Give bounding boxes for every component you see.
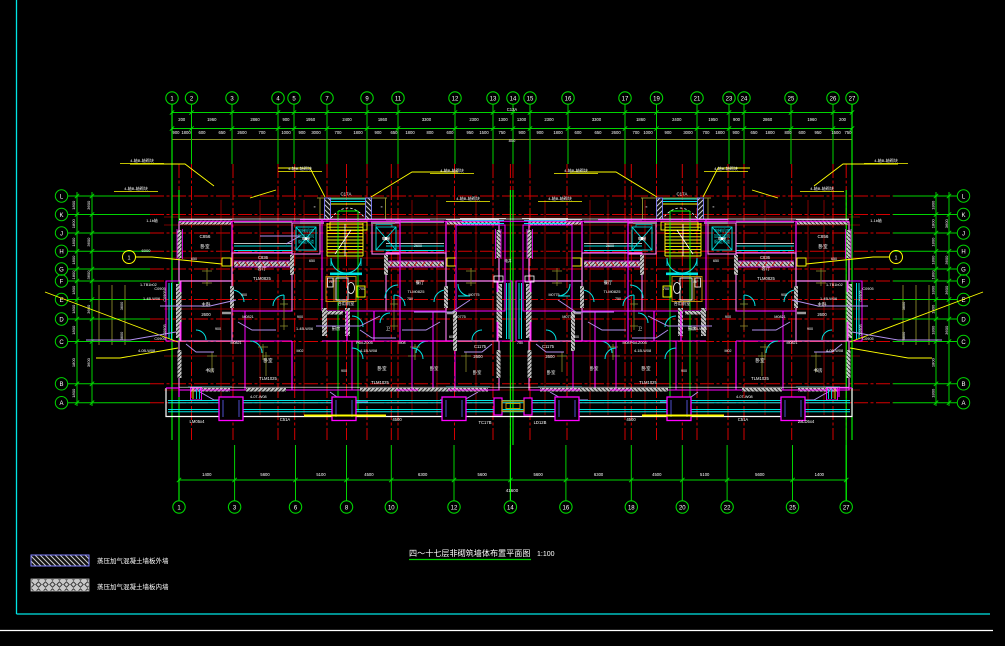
svg-text:K: K <box>59 213 63 219</box>
svg-text:1950: 1950 <box>306 117 316 122</box>
svg-text:4-轴B-轴砌块: 4-轴B-轴砌块 <box>130 157 154 163</box>
svg-text:1-4B-W06: 1-4B-W06 <box>296 327 313 331</box>
svg-text:1800: 1800 <box>71 285 76 295</box>
svg-text:K: K <box>961 213 965 219</box>
svg-text:700: 700 <box>359 287 365 291</box>
svg-text:四～十七层非砌筑墙体布置平面图: 四～十七层非砌筑墙体布置平面图 <box>409 548 530 558</box>
svg-text:1800: 1800 <box>71 200 76 210</box>
svg-text:LD12B: LD12B <box>534 420 547 425</box>
svg-text:G: G <box>961 267 966 273</box>
svg-text:1800: 1800 <box>931 325 936 335</box>
svg-text:1860: 1860 <box>636 117 646 122</box>
svg-text:C0905: C0905 <box>862 337 873 341</box>
svg-text:950: 950 <box>467 130 475 135</box>
svg-text:3600: 3600 <box>944 219 949 229</box>
svg-text:17: 17 <box>622 96 629 102</box>
svg-text:M0821: M0821 <box>774 315 786 319</box>
svg-text:TLM1025: TLM1025 <box>259 376 277 381</box>
svg-text:C0905: C0905 <box>859 290 863 301</box>
svg-text:客厅: 客厅 <box>761 265 771 272</box>
svg-text:600: 600 <box>575 130 583 135</box>
svg-text:B: B <box>961 382 965 388</box>
svg-text:750: 750 <box>407 297 413 301</box>
svg-text:C: C <box>59 340 64 346</box>
svg-text:2xLD5x4: 2xLD5x4 <box>798 419 815 424</box>
svg-text:27: 27 <box>843 505 850 511</box>
svg-text:4-0B-W08: 4-0B-W08 <box>138 349 155 353</box>
svg-text:14: 14 <box>507 505 514 511</box>
svg-text:3600: 3600 <box>944 255 949 265</box>
svg-text:B: B <box>59 382 63 388</box>
svg-text:12: 12 <box>452 96 459 102</box>
svg-text:3600: 3600 <box>86 357 91 367</box>
svg-text:5100: 5100 <box>316 472 326 477</box>
svg-text:卧室: 卧室 <box>818 243 828 250</box>
svg-text:1800: 1800 <box>931 219 936 229</box>
svg-text:C0905: C0905 <box>154 337 165 341</box>
svg-text:16: 16 <box>565 96 572 102</box>
svg-text:1860: 1860 <box>378 117 388 122</box>
svg-text:27: 27 <box>849 96 856 102</box>
svg-text:C0905: C0905 <box>154 287 165 291</box>
svg-text:C12A: C12A <box>507 107 518 112</box>
svg-text:D: D <box>59 317 64 323</box>
svg-text:700: 700 <box>259 130 267 135</box>
svg-text:800: 800 <box>509 138 516 143</box>
svg-text:3300: 3300 <box>592 117 602 122</box>
svg-text:650: 650 <box>751 130 759 135</box>
svg-text:4500: 4500 <box>652 472 662 477</box>
svg-text:200: 200 <box>839 117 847 122</box>
svg-text:1800: 1800 <box>71 388 76 398</box>
svg-text:1300: 1300 <box>517 117 527 122</box>
svg-text:2600: 2600 <box>473 354 483 359</box>
svg-text:TLM1025: TLM1025 <box>639 380 657 385</box>
svg-text:M02: M02 <box>725 349 732 353</box>
svg-text:A: A <box>961 401 965 407</box>
svg-text:4-轴B-轴砌块: 4-轴B-轴砌块 <box>440 167 464 173</box>
svg-text:2600: 2600 <box>201 312 211 317</box>
svg-text:900: 900 <box>341 369 347 373</box>
svg-text:M0821: M0821 <box>231 341 242 345</box>
svg-text:1400: 1400 <box>202 472 212 477</box>
svg-text:1800: 1800 <box>931 357 936 367</box>
svg-text:3600: 3600 <box>120 332 124 340</box>
svg-text:600: 600 <box>199 130 207 135</box>
svg-text:4-轴B-轴砌块: 4-轴B-轴砌块 <box>714 165 738 171</box>
svg-text:4-轴B-轴砌块: 4-轴B-轴砌块 <box>564 167 588 173</box>
svg-text:C856: C856 <box>818 234 829 239</box>
svg-text:1400: 1400 <box>815 472 825 477</box>
svg-text:650: 650 <box>831 257 837 261</box>
svg-text:1950: 1950 <box>708 117 718 122</box>
svg-text:6300: 6300 <box>418 472 428 477</box>
svg-text:电梯: 电梯 <box>638 235 646 242</box>
svg-text:TLM1025: TLM1025 <box>751 376 769 381</box>
svg-text:M0775: M0775 <box>454 315 466 319</box>
svg-text:1-TB1b02: 1-TB1b02 <box>826 283 843 287</box>
svg-text:1-1b轴: 1-1b轴 <box>146 218 158 223</box>
svg-text:750: 750 <box>499 130 507 135</box>
svg-text:TLM0825: TLM0825 <box>757 276 775 281</box>
svg-text:2400: 2400 <box>672 117 682 122</box>
svg-text:5600: 5600 <box>260 472 270 477</box>
svg-text:2600: 2600 <box>237 130 247 135</box>
svg-text:4-轴B-轴砌块: 4-轴B-轴砌块 <box>124 185 148 191</box>
svg-text:14: 14 <box>510 96 517 102</box>
svg-text:C1175: C1175 <box>542 344 555 349</box>
svg-text:1800: 1800 <box>553 130 563 135</box>
svg-text:C51A: C51A <box>738 417 749 422</box>
svg-text:16: 16 <box>563 505 570 511</box>
svg-text:3600: 3600 <box>902 332 906 340</box>
svg-text:11: 11 <box>395 96 402 102</box>
svg-text:21: 21 <box>694 96 701 102</box>
svg-text:3600: 3600 <box>120 302 124 310</box>
svg-text:1-4B-W06: 1-4B-W06 <box>820 297 837 301</box>
svg-text:650: 650 <box>595 130 603 135</box>
svg-text:卧室: 卧室 <box>590 365 599 372</box>
svg-text:卧室: 卧室 <box>430 365 439 372</box>
svg-text:5600: 5600 <box>478 472 488 477</box>
svg-text:蒸压加气混凝土墙板外墙: 蒸压加气混凝土墙板外墙 <box>97 556 169 565</box>
svg-text:1800: 1800 <box>71 255 76 265</box>
svg-text:M0821: M0821 <box>787 341 798 345</box>
svg-text:1960: 1960 <box>807 117 817 122</box>
svg-text:900: 900 <box>537 130 545 135</box>
svg-text:650: 650 <box>219 130 227 135</box>
svg-text:1000: 1000 <box>281 130 291 135</box>
svg-text:1:100: 1:100 <box>537 551 555 558</box>
svg-text:650: 650 <box>191 257 197 261</box>
svg-text:900: 900 <box>733 130 741 135</box>
svg-text:1: 1 <box>894 256 897 262</box>
svg-text:23: 23 <box>726 96 733 102</box>
svg-text:10: 10 <box>388 505 395 511</box>
svg-text:C17A: C17A <box>677 192 688 197</box>
svg-text:22: 22 <box>724 505 731 511</box>
svg-text:1800: 1800 <box>931 304 936 314</box>
svg-text:4-0T-W08: 4-0T-W08 <box>250 395 267 399</box>
svg-text:主卧: 主卧 <box>201 301 211 308</box>
svg-text:1300: 1300 <box>498 117 508 122</box>
svg-text:20: 20 <box>679 505 686 511</box>
svg-text:TLM0825: TLM0825 <box>408 289 426 294</box>
svg-text:LM05x4: LM05x4 <box>190 419 206 424</box>
svg-text:900: 900 <box>299 130 307 135</box>
svg-text:750: 750 <box>615 297 621 301</box>
svg-text:J: J <box>962 231 965 237</box>
svg-text:2400: 2400 <box>342 117 352 122</box>
svg-text:C836: C836 <box>760 255 771 260</box>
svg-text:合用前室: 合用前室 <box>674 300 691 307</box>
svg-text:M02: M02 <box>297 349 304 353</box>
svg-text:C0905: C0905 <box>862 287 873 291</box>
svg-text:M0821: M0821 <box>242 315 254 319</box>
svg-text:M0775: M0775 <box>549 293 560 297</box>
svg-text:卧室: 卧室 <box>641 365 651 372</box>
svg-text:6000: 6000 <box>142 248 152 253</box>
svg-text:3600: 3600 <box>944 285 949 295</box>
svg-text:1500: 1500 <box>831 130 841 135</box>
svg-text:F: F <box>60 279 64 285</box>
svg-text:1800: 1800 <box>71 304 76 314</box>
svg-text:2600: 2600 <box>545 354 555 359</box>
svg-text:1: 1 <box>127 256 130 262</box>
svg-text:25: 25 <box>789 505 796 511</box>
svg-text:650: 650 <box>391 130 399 135</box>
svg-text:A: A <box>59 401 63 407</box>
svg-text:750: 750 <box>845 130 853 135</box>
svg-text:600: 600 <box>799 130 807 135</box>
svg-text:41600: 41600 <box>506 488 519 493</box>
svg-text:卧室: 卧室 <box>200 243 210 250</box>
svg-text:J: J <box>60 231 63 237</box>
svg-text:C0905: C0905 <box>859 324 863 335</box>
svg-text:1800: 1800 <box>71 270 76 280</box>
svg-text:4500: 4500 <box>626 417 636 422</box>
svg-text:TLM0825: TLM0825 <box>253 276 271 281</box>
svg-text:12: 12 <box>451 505 458 511</box>
svg-text:4-轴B-轴砌块: 4-轴B-轴砌块 <box>288 165 312 171</box>
svg-text:1800: 1800 <box>405 130 415 135</box>
svg-text:卧室: 卧室 <box>473 369 482 376</box>
svg-text:H: H <box>59 250 63 256</box>
svg-text:600: 600 <box>449 335 455 339</box>
svg-text:900: 900 <box>733 117 741 122</box>
svg-text:卧室: 卧室 <box>377 365 387 372</box>
svg-text:4-轴B-轴砌块: 4-轴B-轴砌块 <box>456 195 480 201</box>
svg-text:5600: 5600 <box>533 472 543 477</box>
svg-text:3000: 3000 <box>311 130 321 135</box>
svg-text:RF: RF <box>693 279 699 284</box>
svg-text:5600: 5600 <box>755 472 765 477</box>
svg-text:1800: 1800 <box>71 325 76 335</box>
svg-text:餐厅: 餐厅 <box>416 279 425 286</box>
svg-text:900: 900 <box>519 130 527 135</box>
svg-text:卫: 卫 <box>638 326 642 331</box>
svg-text:900: 900 <box>283 117 291 122</box>
svg-text:C0905: C0905 <box>163 324 167 335</box>
svg-text:13: 13 <box>490 96 497 102</box>
svg-text:客厅: 客厅 <box>257 265 267 272</box>
svg-text:M08: M08 <box>623 341 630 345</box>
svg-text:电井: 电井 <box>504 258 512 263</box>
svg-text:卧室: 卧室 <box>547 369 556 376</box>
svg-text:1800: 1800 <box>715 130 725 135</box>
svg-text:电梯机房: 电梯机房 <box>714 227 730 233</box>
svg-text:6300: 6300 <box>594 472 604 477</box>
svg-text:3000: 3000 <box>683 130 693 135</box>
svg-text:1800: 1800 <box>931 200 936 210</box>
svg-text:3600: 3600 <box>86 200 91 210</box>
svg-text:C836: C836 <box>258 255 269 260</box>
svg-text:TLM1025: TLM1025 <box>371 380 389 385</box>
svg-text:1800: 1800 <box>71 357 76 367</box>
svg-text:1800: 1800 <box>931 388 936 398</box>
svg-text:650: 650 <box>309 259 315 263</box>
svg-text:600: 600 <box>447 130 455 135</box>
svg-text:C17A: C17A <box>341 192 352 197</box>
svg-text:厨房: 厨房 <box>332 325 340 332</box>
svg-text:1-4B-W06: 1-4B-W06 <box>690 327 707 331</box>
svg-text:600: 600 <box>573 335 579 339</box>
svg-text:主卧: 主卧 <box>817 301 827 308</box>
svg-text:4-1B-W08: 4-1B-W08 <box>360 349 377 353</box>
svg-text:2600: 2600 <box>817 312 827 317</box>
svg-text:1800: 1800 <box>931 285 936 295</box>
svg-text:烟道井道: 烟道井道 <box>714 238 730 244</box>
svg-text:4-轴B-轴砌块: 4-轴B-轴砌块 <box>548 195 572 201</box>
svg-text:5100: 5100 <box>700 472 710 477</box>
svg-text:D: D <box>961 317 966 323</box>
svg-text:G: G <box>59 267 64 273</box>
svg-text:700: 700 <box>663 287 669 291</box>
svg-text:M0775: M0775 <box>562 315 574 319</box>
svg-text:950: 950 <box>815 130 823 135</box>
svg-text:2600: 2600 <box>611 130 621 135</box>
svg-text:900: 900 <box>781 293 787 297</box>
svg-text:电梯机房: 电梯机房 <box>298 227 314 233</box>
svg-text:700: 700 <box>703 130 711 135</box>
svg-text:加压送风: 加压送风 <box>298 233 314 239</box>
svg-text:1800: 1800 <box>71 237 76 247</box>
svg-text:1000: 1000 <box>643 130 653 135</box>
svg-text:15: 15 <box>527 96 534 102</box>
svg-text:1800: 1800 <box>931 237 936 247</box>
svg-text:H: H <box>961 250 965 256</box>
svg-text:900: 900 <box>297 315 303 319</box>
svg-text:1800: 1800 <box>931 255 936 265</box>
svg-text:750: 750 <box>517 341 523 345</box>
svg-text:P6d-Z005: P6d-Z005 <box>630 341 647 345</box>
svg-text:1-1b轴: 1-1b轴 <box>870 218 882 223</box>
svg-text:蒸压加气混凝土墙板内墙: 蒸压加气混凝土墙板内墙 <box>97 582 169 591</box>
svg-text:1800: 1800 <box>181 130 191 135</box>
svg-text:900: 900 <box>665 130 673 135</box>
svg-text:3600: 3600 <box>86 270 91 280</box>
svg-text:1960: 1960 <box>207 117 217 122</box>
svg-text:700: 700 <box>335 130 343 135</box>
svg-text:24: 24 <box>741 96 748 102</box>
svg-text:1800: 1800 <box>353 130 363 135</box>
svg-text:1500: 1500 <box>479 130 489 135</box>
svg-text:650: 650 <box>713 259 719 263</box>
svg-text:1800: 1800 <box>71 219 76 229</box>
svg-text:4-轴B-轴砌块: 4-轴B-轴砌块 <box>810 185 834 191</box>
svg-text:M0775: M0775 <box>469 293 480 297</box>
svg-text:M08: M08 <box>399 341 406 345</box>
svg-text:C0905: C0905 <box>163 290 167 301</box>
svg-text:200: 200 <box>178 117 186 122</box>
svg-text:C51A: C51A <box>280 417 291 422</box>
svg-text:900: 900 <box>681 369 687 373</box>
svg-text:1-4B-W06: 1-4B-W06 <box>143 297 160 301</box>
svg-text:4-0B-W08: 4-0B-W08 <box>826 349 843 353</box>
svg-text:700: 700 <box>633 130 641 135</box>
svg-text:900: 900 <box>375 130 383 135</box>
svg-text:4500: 4500 <box>364 472 374 477</box>
svg-text:3300: 3300 <box>422 117 432 122</box>
svg-text:4-0T-W08: 4-0T-W08 <box>736 395 753 399</box>
svg-text:合用前室: 合用前室 <box>338 300 355 307</box>
svg-text:25: 25 <box>788 96 795 102</box>
svg-text:C1175: C1175 <box>474 344 487 349</box>
svg-text:电梯: 电梯 <box>382 235 390 242</box>
svg-text:19: 19 <box>653 96 660 102</box>
svg-text:2860: 2860 <box>250 117 260 122</box>
svg-text:书房: 书房 <box>205 367 215 374</box>
svg-text:900: 900 <box>215 327 221 331</box>
svg-text:餐厅: 餐厅 <box>604 279 613 286</box>
svg-text:4-1B-W08: 4-1B-W08 <box>634 349 651 353</box>
svg-text:RF: RF <box>329 279 335 284</box>
svg-text:2600: 2600 <box>414 244 422 248</box>
svg-text:1800: 1800 <box>931 270 936 280</box>
svg-text:2300: 2300 <box>544 117 554 122</box>
svg-text:TC17B: TC17B <box>478 420 491 425</box>
svg-text:TLM0825: TLM0825 <box>604 289 622 294</box>
svg-text:900: 900 <box>725 315 731 319</box>
svg-text:4-轴B-轴砌块: 4-轴B-轴砌块 <box>874 157 898 163</box>
svg-text:18: 18 <box>628 505 635 511</box>
svg-text:900: 900 <box>807 327 813 331</box>
svg-text:4500: 4500 <box>392 417 402 422</box>
svg-text:F: F <box>962 279 966 285</box>
svg-text:3600: 3600 <box>944 325 949 335</box>
svg-text:2860: 2860 <box>763 117 773 122</box>
svg-text:加压送风: 加压送风 <box>714 233 730 239</box>
svg-text:2600: 2600 <box>606 244 614 248</box>
svg-text:26: 26 <box>830 96 837 102</box>
svg-text:900: 900 <box>241 293 247 297</box>
svg-text:3600: 3600 <box>86 237 91 247</box>
svg-text:书房: 书房 <box>813 367 823 374</box>
svg-text:卫: 卫 <box>386 326 390 331</box>
svg-text:卧室: 卧室 <box>755 357 765 364</box>
svg-text:3600: 3600 <box>902 302 906 310</box>
svg-text:卧室: 卧室 <box>263 357 273 364</box>
svg-text:烟道井道: 烟道井道 <box>298 238 314 244</box>
svg-text:C: C <box>961 340 966 346</box>
svg-text:1800: 1800 <box>765 130 775 135</box>
svg-text:900: 900 <box>173 130 181 135</box>
svg-text:C856: C856 <box>200 234 211 239</box>
svg-text:2300: 2300 <box>469 117 479 122</box>
svg-text:P6d-Z005: P6d-Z005 <box>356 341 373 345</box>
svg-text:800: 800 <box>785 130 793 135</box>
svg-text:800: 800 <box>427 130 435 135</box>
